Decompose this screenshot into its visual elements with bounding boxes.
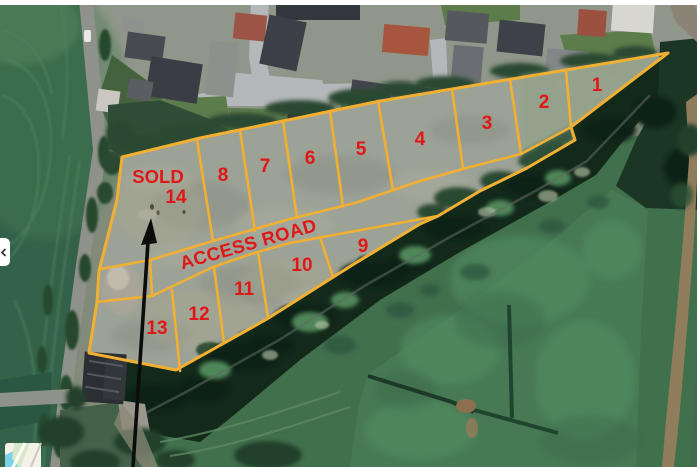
svg-text:7: 7 <box>260 156 271 177</box>
svg-text:5: 5 <box>356 139 367 160</box>
svg-text:9: 9 <box>358 236 369 257</box>
svg-text:3: 3 <box>482 113 493 134</box>
svg-text:4: 4 <box>415 129 426 150</box>
svg-text:1: 1 <box>592 75 603 96</box>
svg-text:13: 13 <box>146 318 167 339</box>
svg-text:8: 8 <box>218 165 229 186</box>
svg-text:2: 2 <box>539 92 550 113</box>
svg-text:10: 10 <box>291 255 312 276</box>
svg-text:6: 6 <box>305 148 316 169</box>
svg-text:11: 11 <box>234 279 255 300</box>
svg-text:SOLD: SOLD <box>132 166 183 187</box>
svg-text:14: 14 <box>165 187 187 208</box>
svg-text:12: 12 <box>188 304 209 325</box>
